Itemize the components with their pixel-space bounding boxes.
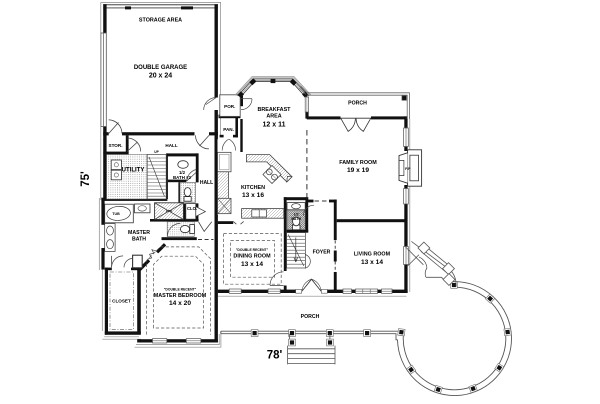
svg-text:BATH: BATH bbox=[291, 217, 301, 221]
svg-text:14 x 20: 14 x 20 bbox=[169, 300, 191, 307]
svg-text:19 x 19: 19 x 19 bbox=[347, 167, 369, 174]
svg-text:12 x 11: 12 x 11 bbox=[263, 122, 286, 129]
svg-text:HALL: HALL bbox=[200, 180, 213, 186]
svg-text:UTILITY: UTILITY bbox=[122, 168, 145, 174]
svg-text:FAMILY ROOM: FAMILY ROOM bbox=[339, 160, 377, 166]
svg-text:CLOSET: CLOSET bbox=[112, 298, 131, 303]
svg-text:13 x 14: 13 x 14 bbox=[241, 261, 263, 268]
svg-text:13 x 14: 13 x 14 bbox=[361, 259, 383, 266]
svg-text:44"R: 44"R bbox=[166, 209, 172, 213]
svg-text:MASTER: MASTER bbox=[128, 230, 150, 236]
svg-text:BREAKFAST: BREAKFAST bbox=[258, 107, 292, 113]
svg-text:UP: UP bbox=[154, 150, 159, 154]
svg-text:PAN.: PAN. bbox=[223, 127, 234, 132]
svg-text:PORCH: PORCH bbox=[348, 101, 367, 107]
svg-text:75': 75' bbox=[80, 171, 92, 187]
svg-text:LIVING ROOM: LIVING ROOM bbox=[354, 252, 391, 258]
svg-text:PORCH: PORCH bbox=[301, 314, 320, 320]
svg-text:KITCHEN: KITCHEN bbox=[241, 185, 265, 191]
svg-text:DINING ROOM: DINING ROOM bbox=[233, 253, 271, 259]
svg-text:FOYER: FOYER bbox=[313, 249, 331, 255]
svg-text:STOR.: STOR. bbox=[109, 143, 123, 148]
svg-text:F/P: F/P bbox=[405, 167, 411, 171]
svg-text:"DOUBLE RECENT": "DOUBLE RECENT" bbox=[164, 287, 197, 291]
svg-text:BATH #2: BATH #2 bbox=[173, 175, 192, 180]
svg-text:13 x 16: 13 x 16 bbox=[242, 192, 264, 199]
svg-text:78': 78' bbox=[267, 350, 283, 362]
svg-text:BATH: BATH bbox=[132, 237, 146, 243]
svg-text:STORAGE AREA: STORAGE AREA bbox=[139, 18, 182, 24]
svg-text:DOUBLE GARAGE: DOUBLE GARAGE bbox=[134, 65, 187, 71]
svg-text:HALL: HALL bbox=[165, 143, 177, 148]
svg-text:1/2: 1/2 bbox=[294, 212, 299, 216]
svg-text:AREA: AREA bbox=[266, 114, 281, 120]
svg-text:MASTER BEDROOM: MASTER BEDROOM bbox=[154, 293, 207, 299]
svg-text:20 x 24: 20 x 24 bbox=[149, 73, 172, 80]
svg-text:"DOUBLE RECENT": "DOUBLE RECENT" bbox=[236, 248, 269, 252]
svg-text:CLO.: CLO. bbox=[187, 206, 197, 211]
svg-text:POR.: POR. bbox=[224, 104, 235, 109]
svg-text:TUB: TUB bbox=[112, 212, 120, 216]
